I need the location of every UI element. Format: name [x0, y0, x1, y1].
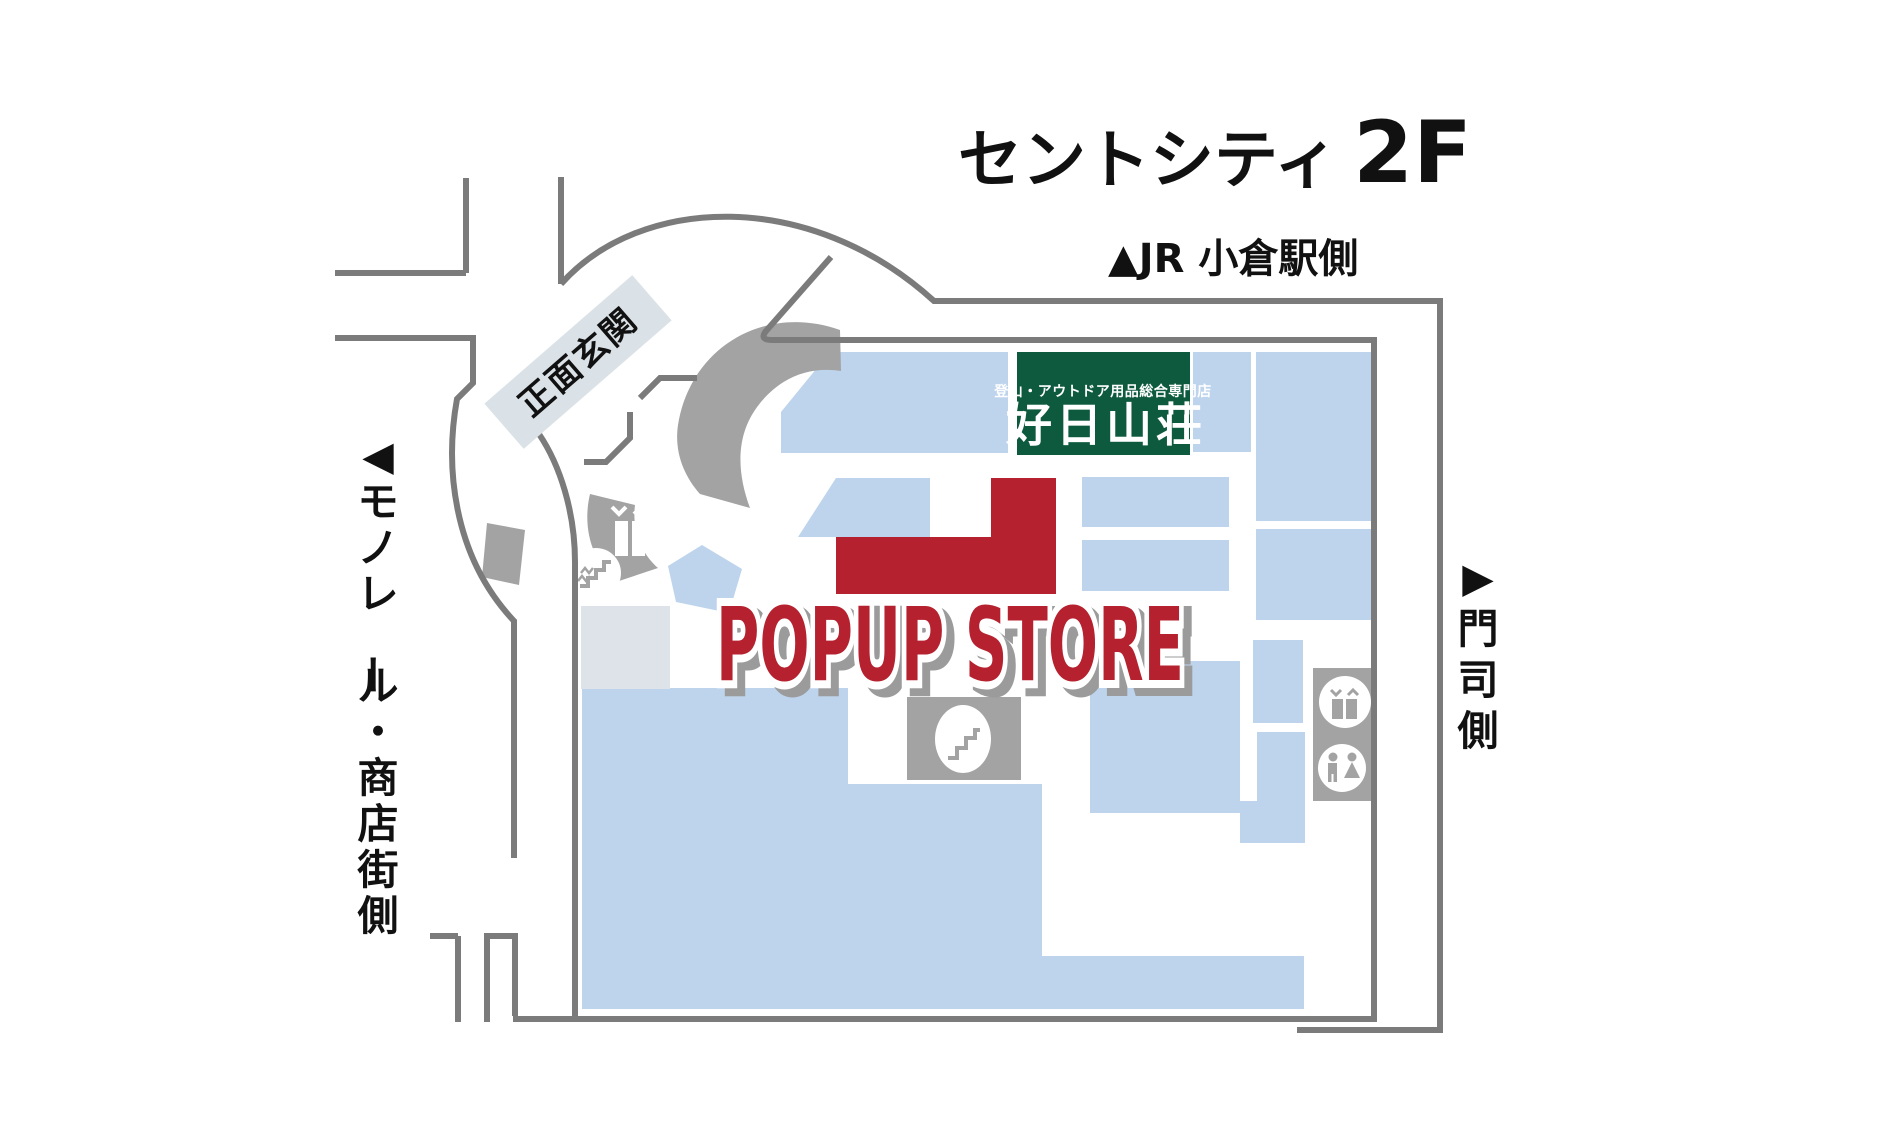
store-block [1240, 732, 1305, 843]
entrance-band: 正面玄関 [484, 275, 671, 449]
store-block-pale [581, 606, 670, 689]
escalator-icon [935, 705, 991, 773]
restroom-icon [1318, 744, 1366, 792]
store-block [1253, 640, 1303, 723]
direction-moji: ▶門司側 [1457, 554, 1499, 755]
store-block [1256, 529, 1372, 620]
wall-bottom-gate-1 [430, 936, 458, 1022]
store-block [1082, 540, 1229, 591]
page-title: セントシティ 2F [958, 103, 1472, 203]
popup-store-label: POPUP STORE POPUP STORE POPUP STORE [716, 586, 1192, 713]
elevator-box [1313, 668, 1377, 738]
floor-map-page: 正面玄関 登山・アウトドア用品総合専門店 好日山荘 POPUP STORE PO… [0, 0, 1901, 1141]
kojitsusanso-sign: 登山・アウトドア用品総合専門店 好日山荘 [993, 352, 1212, 455]
popup-label: POPUP STORE [716, 586, 1184, 705]
title-building: セントシティ [958, 124, 1338, 198]
wall-left-inner [539, 434, 575, 1019]
store-block [1082, 477, 1229, 527]
direction-monorail: ◀モノレール・商店街側 [348, 432, 399, 940]
store-block [798, 478, 930, 537]
stairs-icon [571, 548, 621, 598]
direction-jr: ▲JR 小倉駅側 [1108, 236, 1358, 282]
wall-bottom-gate-2 [487, 936, 515, 1022]
wall-atrium-gate-lower [584, 412, 630, 462]
title-floor: 2F [1353, 103, 1472, 203]
sign-name: 好日山荘 [1005, 398, 1206, 452]
elevator-icon [1319, 676, 1371, 728]
wall-top-left-gate [335, 178, 466, 273]
walkway-arc-left [482, 523, 525, 585]
store-block [1256, 352, 1372, 521]
restroom-box [1313, 737, 1373, 801]
floor-map: 正面玄関 登山・アウトドア用品総合専門店 好日山荘 POPUP STORE PO… [0, 0, 1901, 1141]
